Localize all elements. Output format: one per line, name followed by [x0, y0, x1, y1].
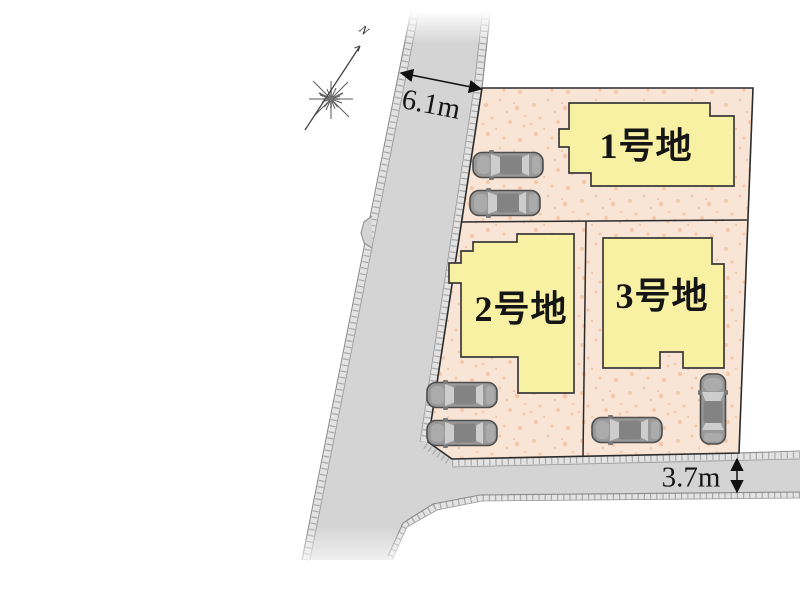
car-icon — [592, 415, 662, 445]
road-fade-top — [380, 0, 505, 44]
lot-2-label: 2号地 — [474, 291, 567, 327]
road-fade-bottom — [262, 526, 462, 600]
car-icon — [427, 380, 497, 410]
car-icon — [470, 188, 540, 218]
compass-needle — [305, 46, 360, 130]
site-plan: N 6.1m 3.7m 1号地 2号地 3号地 — [0, 0, 800, 600]
lot-1-label: 1号地 — [599, 128, 692, 164]
lot-3-label: 3号地 — [615, 278, 708, 314]
road-edge-bulge — [361, 216, 372, 248]
dimension-south-road-label: 3.7m — [662, 464, 721, 493]
car-icon — [698, 374, 728, 444]
car-icon — [427, 418, 497, 448]
car-icon — [473, 150, 543, 180]
compass-rose-icon — [305, 46, 360, 130]
